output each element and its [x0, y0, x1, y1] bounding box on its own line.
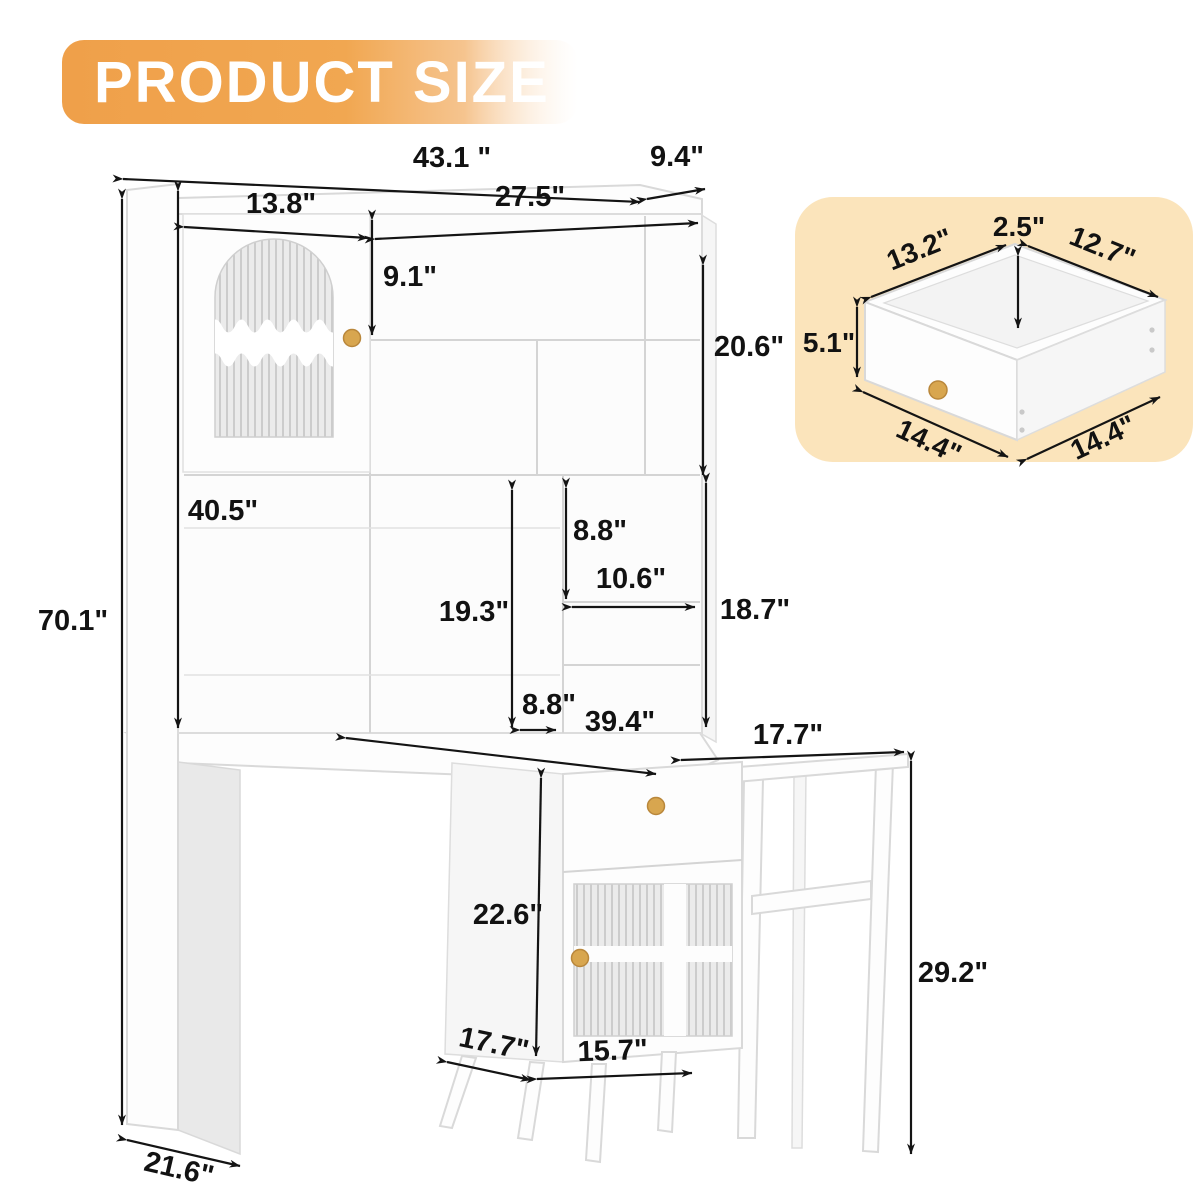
dim-label-column-depth: 8.8" [522, 689, 576, 721]
dim-label-top-inner-height: 2.5" [993, 211, 1045, 242]
dim-label-hutch-right-width: 27.5" [495, 181, 565, 213]
arch-door-knob [344, 330, 361, 347]
cabinet-door-stile [664, 884, 686, 1036]
dim-label-overall-width: 43.1 " [413, 142, 491, 174]
dim-label-hutch-opening-height: 40.5" [188, 495, 258, 527]
side-table-stretcher [752, 881, 871, 914]
dim-label-side-table-width: 17.7" [753, 719, 823, 751]
title-badge: PRODUCT SIZE [62, 40, 578, 124]
side-table-front-right-leg [863, 763, 893, 1152]
dim-label-top-depth: 9.4" [650, 141, 704, 173]
cabinet-door-knob [572, 950, 589, 967]
diagram-canvas: PRODUCT SIZE [0, 0, 1200, 1200]
dim-label-lower-open-height: 19.3" [439, 596, 509, 628]
dim-label-front-height: 5.1" [803, 327, 855, 358]
dim-label-base-depth: 21.6" [141, 1146, 217, 1193]
arch-door [183, 214, 370, 472]
left-side-panel [127, 184, 178, 1130]
drawer-knob [929, 381, 947, 399]
dim-label-hutch-left-width: 13.8" [246, 188, 316, 220]
left-panel-inner-face [178, 762, 240, 1154]
dim-label-desk-width: 39.4" [585, 706, 655, 738]
dim-label-cabinet-height: 22.6" [473, 899, 543, 931]
dim-label-right-column-height: 18.7" [720, 594, 790, 626]
dim-label-overall-height: 70.1" [38, 605, 108, 637]
side-table-rear-leg [792, 771, 806, 1148]
dim-label-top-shelf-height: 9.1" [383, 261, 437, 293]
dim-label-cubby-height: 8.8" [573, 515, 627, 547]
dim-label-upper-right-height: 20.6" [714, 331, 784, 363]
cabinet-door-rail [574, 946, 732, 962]
product-size-diagram-page: PRODUCT SIZE [0, 0, 1200, 1200]
dim-label-cabinet-width: 15.7" [577, 1034, 648, 1068]
dim-label-cubby-width: 10.6" [596, 563, 666, 595]
page-title: PRODUCT SIZE [94, 50, 550, 115]
cabinet-drawer-knob [648, 798, 665, 815]
dim-label-side-table-height: 29.2" [918, 957, 988, 989]
desk-cabinet [440, 762, 742, 1162]
drawer-inset: 2.5" 13.2" 12.7" 5.1" 14.4" 14.4" [795, 197, 1193, 470]
